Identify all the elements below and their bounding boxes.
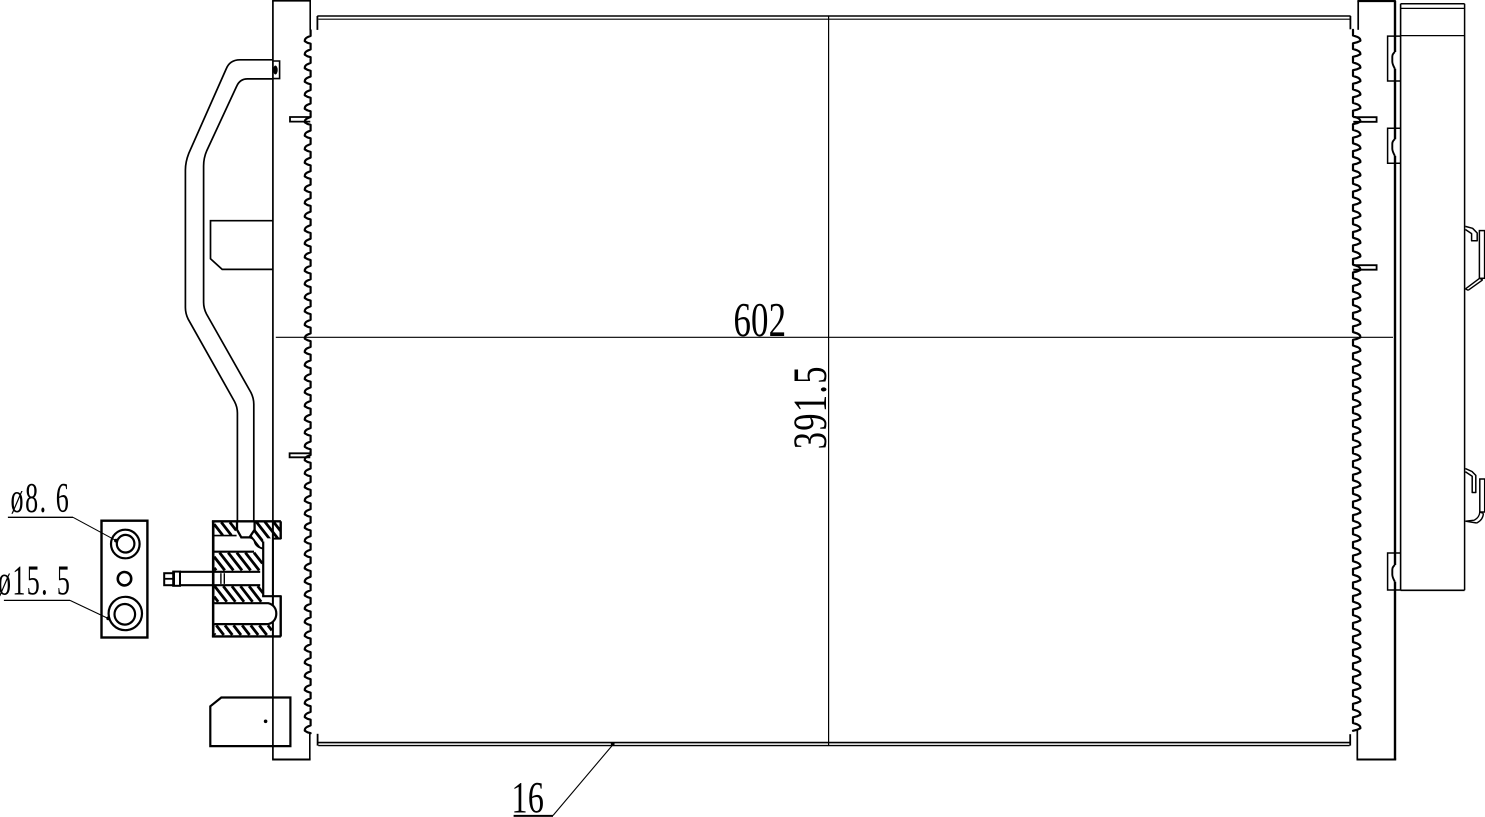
svg-text:602: 602	[734, 294, 787, 348]
svg-text:ø15. 5: ø15. 5	[0, 557, 70, 604]
svg-text:16: 16	[512, 773, 544, 817]
svg-text:391.5: 391.5	[785, 367, 838, 450]
svg-text:ø8. 6: ø8. 6	[11, 475, 69, 522]
